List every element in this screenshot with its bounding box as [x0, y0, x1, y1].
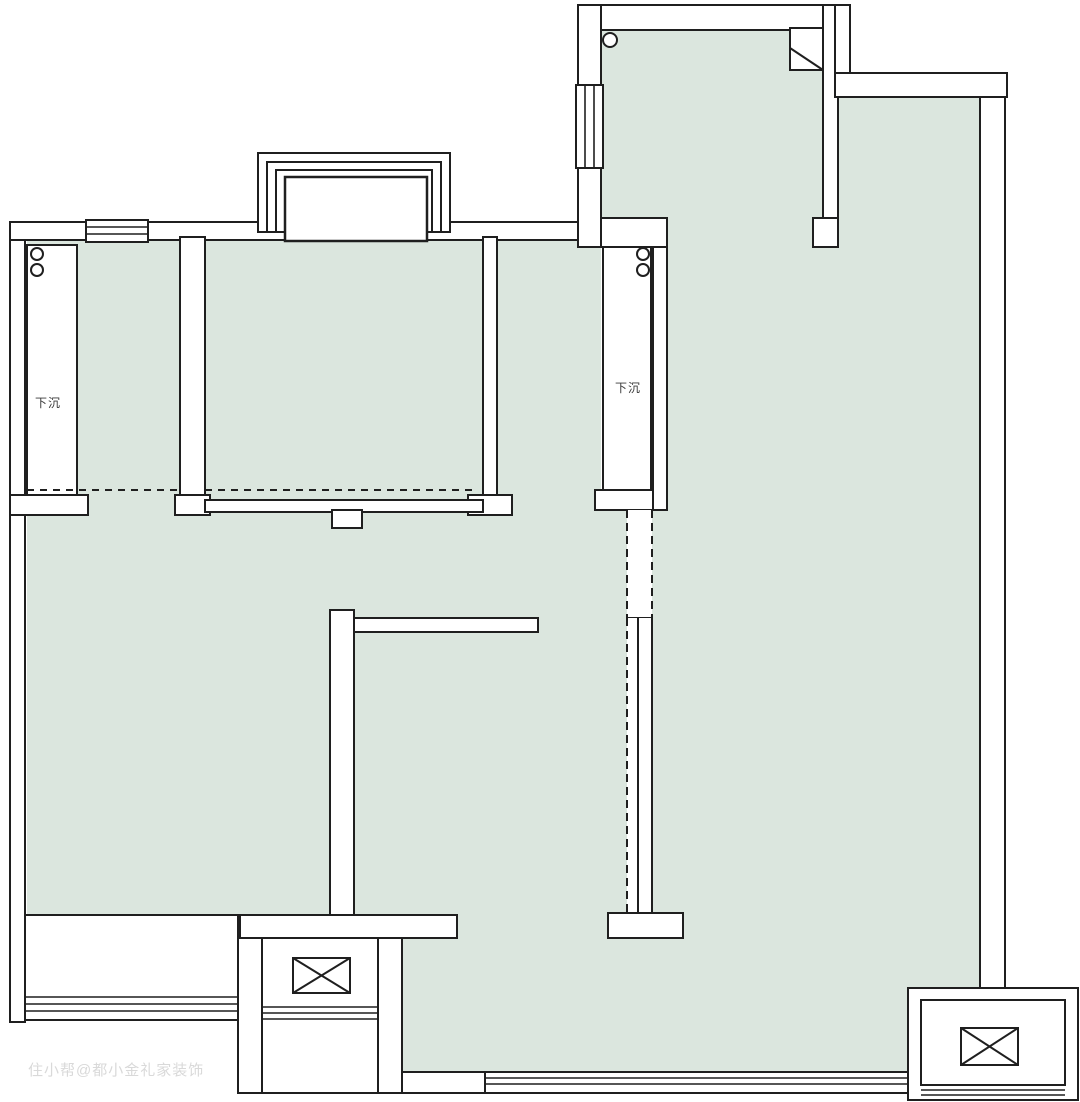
window-top-left	[86, 220, 148, 242]
partition-lower-fill	[627, 618, 652, 913]
wall-top-rooms-divider-1	[180, 237, 205, 515]
sunken-area-middle	[603, 247, 651, 495]
drain-pipe-icon	[637, 248, 649, 260]
wall-outer-bottom	[402, 1072, 911, 1093]
drain-pipe-icon	[637, 264, 649, 276]
wall-outer-left	[10, 222, 25, 1022]
wall-kitchen-right-stub	[813, 218, 838, 247]
floor-plan: 下沉 下沉 住小帮@都小金礼家装饰	[0, 0, 1080, 1102]
opening-fold-icon	[790, 28, 823, 70]
window-kitchen-left	[576, 85, 603, 168]
wall-bottom-of-sunken-left	[10, 495, 88, 515]
wall-center-horizontal	[354, 618, 538, 632]
partition-foot-block	[608, 913, 683, 938]
wall-top-right-horizontal	[835, 73, 1007, 97]
drain-pipe-icon	[603, 33, 617, 47]
room-bottom-mid-floor	[627, 938, 908, 1072]
wall-right-of-sunken-middle	[653, 222, 667, 510]
bay-window-opening	[285, 177, 427, 241]
sunken-label-middle: 下沉	[615, 381, 641, 395]
wall-bottom-band	[240, 915, 457, 938]
sunken-label-left: 下沉	[35, 396, 61, 410]
watermark: 住小帮@都小金礼家装饰	[28, 1062, 204, 1079]
wall-center-vertical	[330, 610, 354, 938]
wall-under-tab	[332, 510, 362, 528]
wall-kitchen-bottom-band	[601, 218, 667, 247]
wall-kitchen-top	[578, 5, 850, 30]
sunken-area-left	[27, 245, 77, 495]
floor-plan-svg: 下沉 下沉 住小帮@都小金礼家装饰	[0, 0, 1080, 1102]
drain-pipe-icon	[31, 248, 43, 260]
room-top-strip-floor	[497, 240, 601, 515]
room-top-middle-floor	[205, 240, 483, 502]
wall-top-rooms-divider-2	[483, 237, 497, 497]
drain-pipe-icon	[31, 264, 43, 276]
wall-outer-right	[980, 73, 1005, 988]
partition-upper-fill	[627, 510, 652, 618]
room-mid-right-floor	[652, 222, 980, 988]
room-bottom-left-floor	[27, 510, 330, 915]
